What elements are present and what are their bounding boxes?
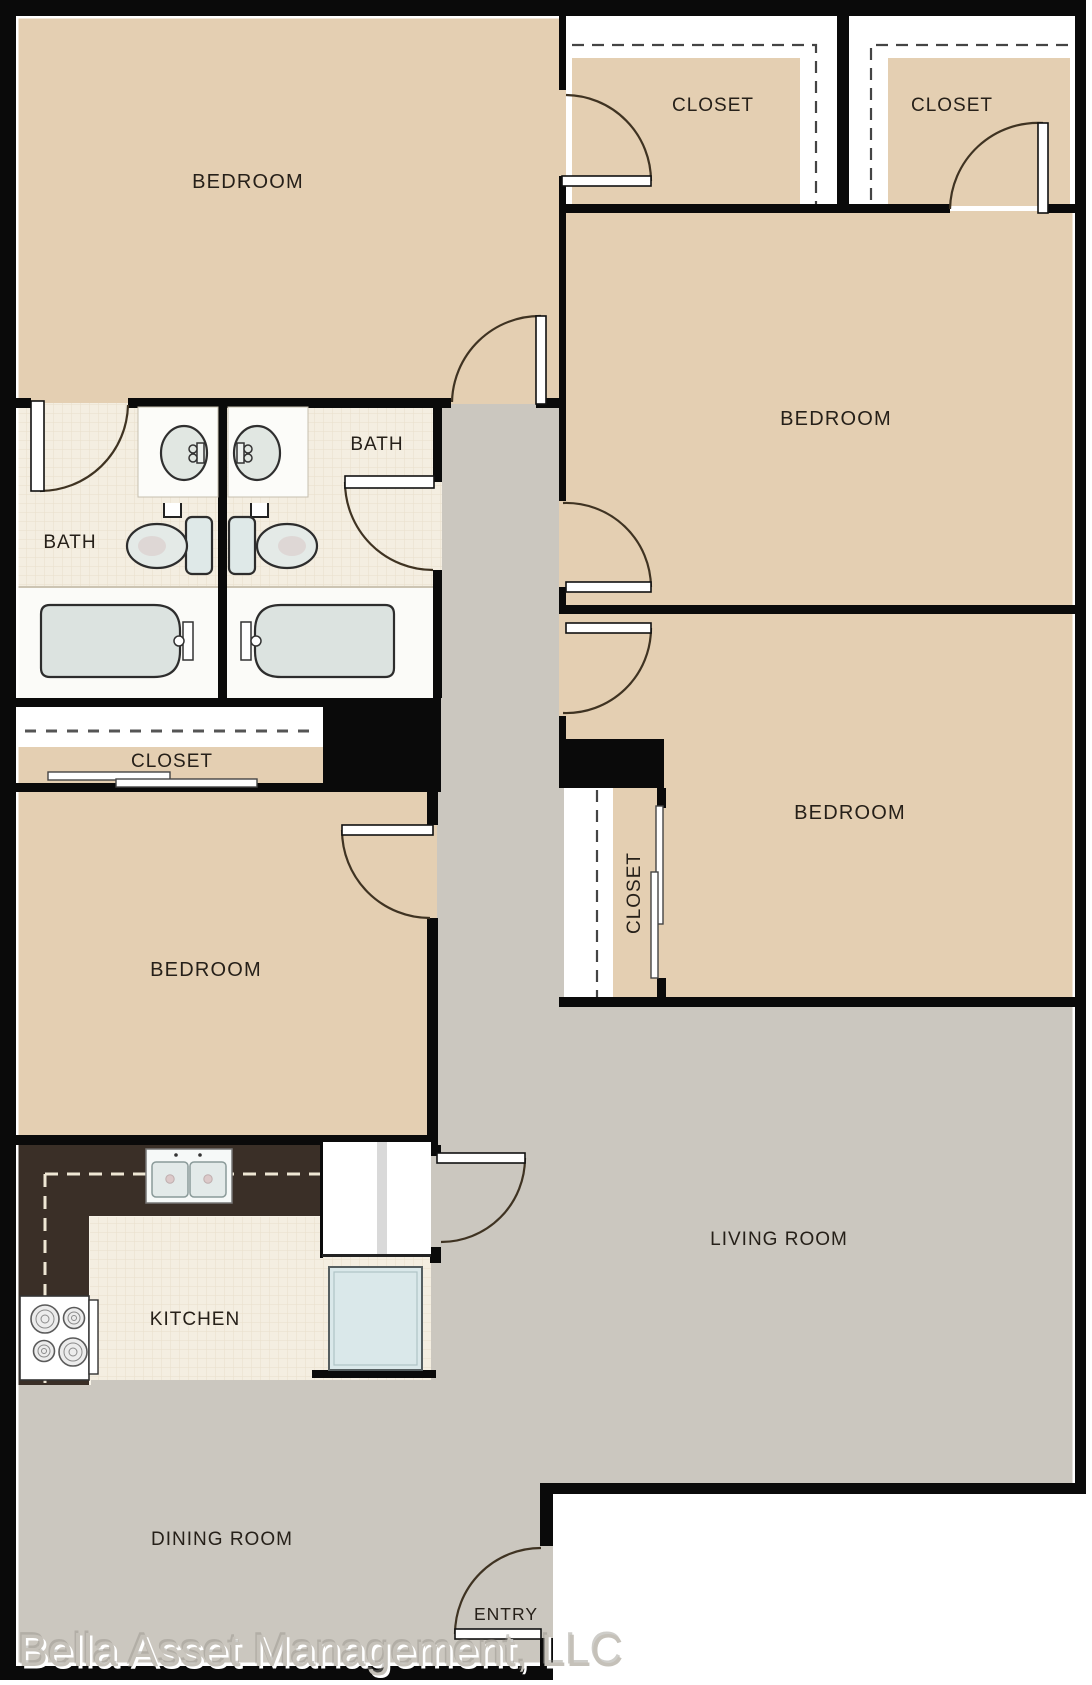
svg-text:Bella Asset Management, LLC: Bella Asset Management, LLC (18, 1625, 623, 1676)
svg-text:CLOSET: CLOSET (624, 852, 645, 934)
svg-text:DINING ROOM: DINING ROOM (151, 1529, 293, 1550)
svg-text:BEDROOM: BEDROOM (192, 171, 304, 193)
svg-text:CLOSET: CLOSET (672, 95, 754, 116)
svg-text:CLOSET: CLOSET (911, 95, 993, 116)
svg-text:BEDROOM: BEDROOM (780, 408, 892, 430)
svg-text:CLOSET: CLOSET (131, 751, 213, 772)
svg-text:BEDROOM: BEDROOM (794, 802, 906, 824)
svg-text:KITCHEN: KITCHEN (150, 1309, 240, 1330)
svg-text:BATH: BATH (350, 434, 403, 455)
svg-text:BATH: BATH (43, 532, 96, 553)
svg-text:LIVING ROOM: LIVING ROOM (710, 1229, 848, 1250)
svg-text:BEDROOM: BEDROOM (150, 959, 262, 981)
svg-text:ENTRY: ENTRY (474, 1604, 538, 1624)
